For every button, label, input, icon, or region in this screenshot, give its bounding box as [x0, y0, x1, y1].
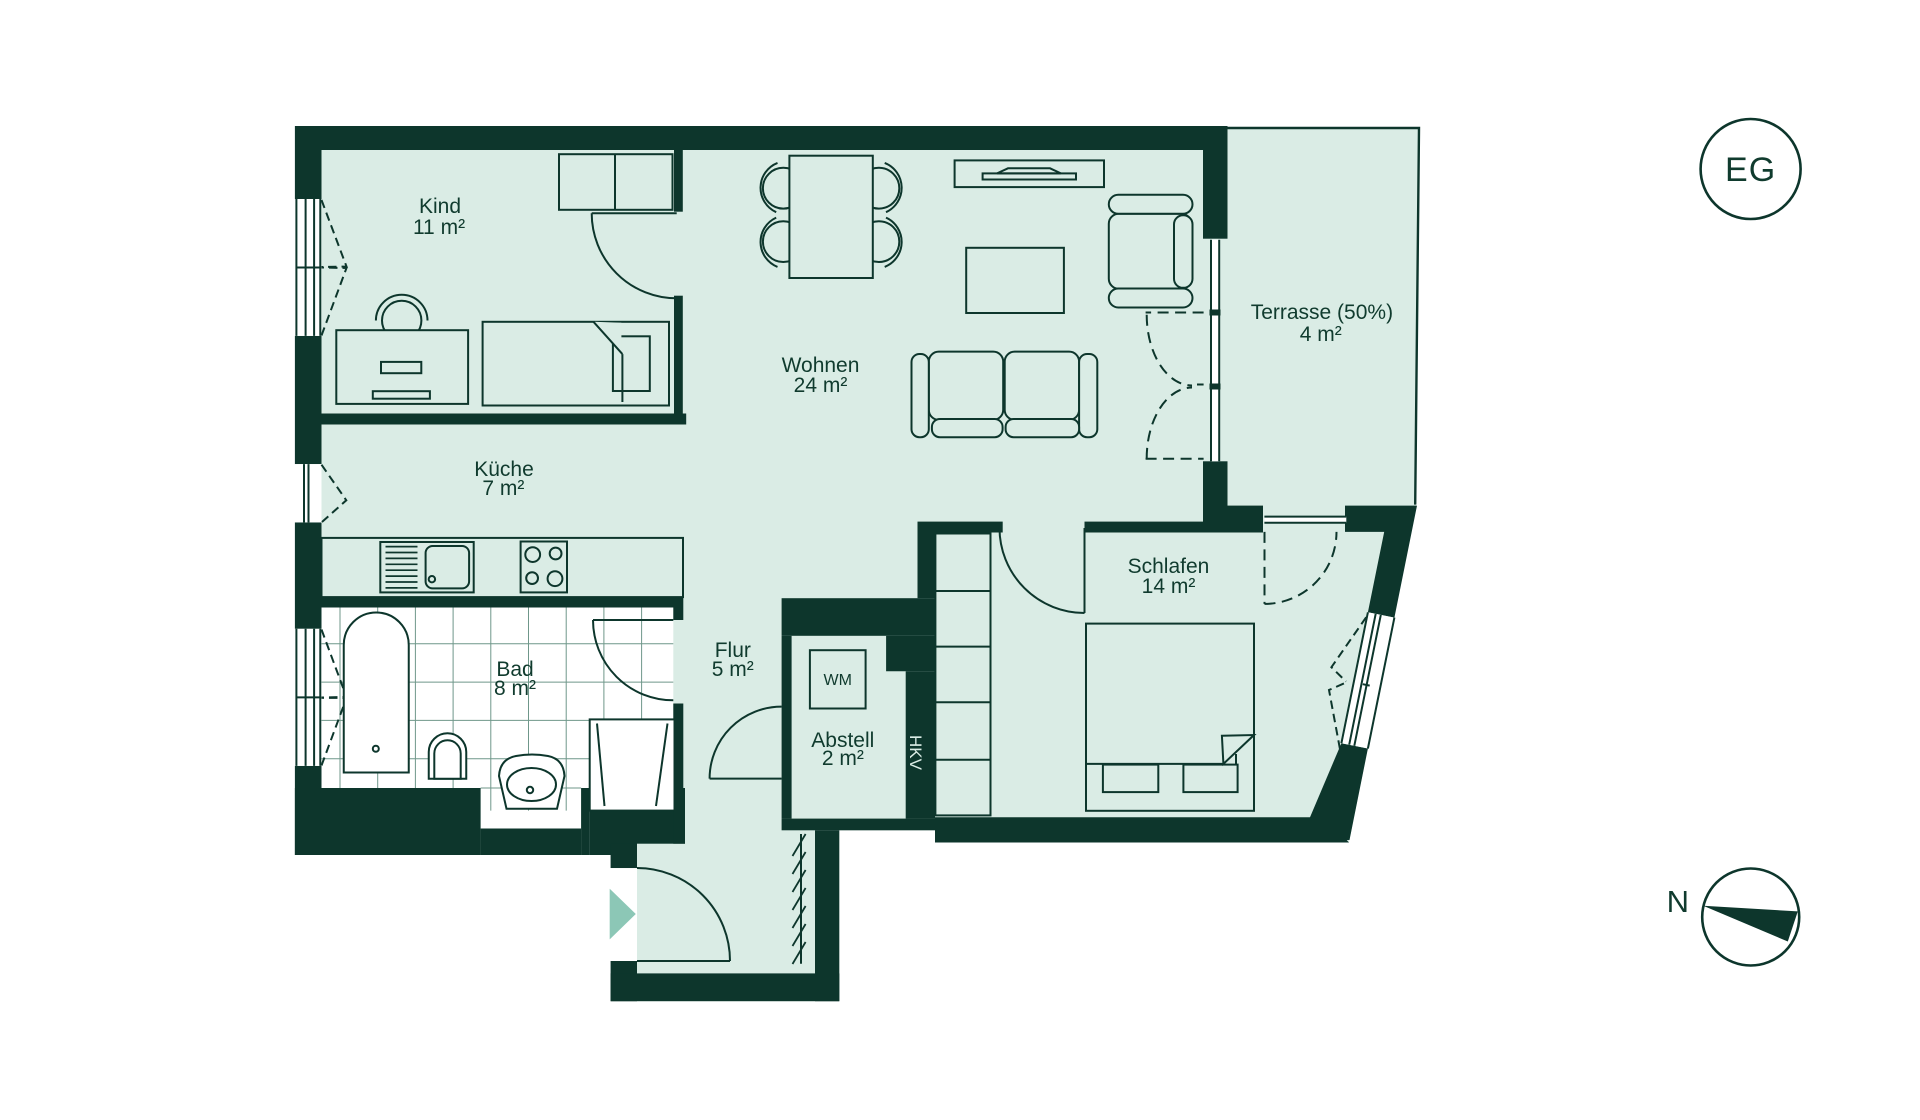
svg-text:5 m²: 5 m² [712, 658, 754, 681]
svg-text:14 m²: 14 m² [1142, 575, 1196, 598]
svg-text:7 m²: 7 m² [482, 477, 524, 500]
svg-text:Terrasse (50%): Terrasse (50%) [1251, 301, 1393, 324]
svg-text:Kind: Kind [419, 195, 461, 218]
svg-text:2 m²: 2 m² [822, 747, 864, 770]
svg-text:8 m²: 8 m² [494, 677, 536, 700]
svg-text:EG: EG [1725, 151, 1776, 189]
svg-text:WM: WM [823, 672, 851, 689]
svg-text:24 m²: 24 m² [794, 374, 848, 397]
svg-text:11 m²: 11 m² [413, 216, 465, 239]
svg-text:HKV: HKV [906, 735, 925, 771]
svg-text:4 m²: 4 m² [1300, 323, 1342, 346]
svg-text:N: N [1667, 884, 1689, 919]
